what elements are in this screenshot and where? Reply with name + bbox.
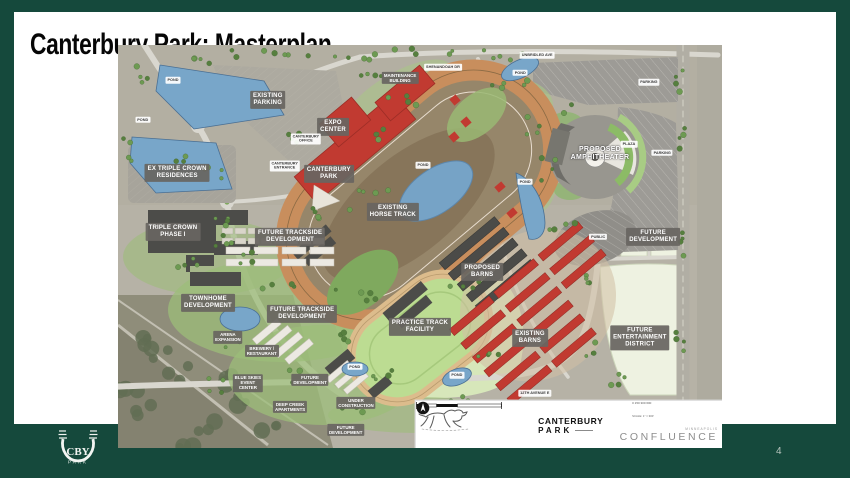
label-pond-southeast: POND bbox=[449, 372, 464, 378]
label-pond-infield: POND bbox=[416, 162, 431, 168]
label-future-development-south: FUTURE DEVELOPMENT bbox=[327, 424, 364, 436]
confluence-wordmark: MINNEAPOLIS CONFLUENCE bbox=[620, 427, 718, 443]
label-expo-center: EXPO CENTER bbox=[317, 118, 349, 136]
label-proposed-barns: PROPOSED BARNS bbox=[461, 263, 503, 281]
canterbury-wordmark-line2: PARK bbox=[538, 426, 603, 435]
label-blue-skies-event-center: BLUE SKIES EVENT CENTER bbox=[233, 374, 263, 392]
map-labels: EXISTING PARKINGEXPO CENTERCANTERBURY PA… bbox=[118, 45, 722, 448]
label-existing-parking: EXISTING PARKING bbox=[250, 91, 286, 109]
label-ex-triple-crown-residences: EX TRIPLE CROWN RESIDENCES bbox=[145, 164, 210, 182]
canterbury-park-wordmark: CANTERBURY PARK bbox=[538, 416, 603, 435]
confluence-word: CONFLUENCE bbox=[620, 431, 718, 443]
label-canterbury-park: CANTERBURY PARK bbox=[304, 165, 354, 183]
north-arrow-icon bbox=[416, 401, 430, 415]
cby-word: PARK bbox=[68, 460, 88, 465]
label-pond-north: POND bbox=[513, 70, 528, 76]
label-pond-2: POND bbox=[135, 117, 150, 123]
label-future-development-mid: FUTURE DEVELOPMENT bbox=[291, 374, 328, 386]
label-proposed-amphitheater: PROPOSED AMPHITHEATER bbox=[571, 146, 630, 163]
map-legend-strip: CANTERBURY PARK 0 150 300 600 SCALE: 1" … bbox=[415, 400, 722, 448]
label-brewery-restaurant: BREWERY / RESTAURANT bbox=[245, 345, 279, 357]
label-public-lot: PUBLIC bbox=[589, 234, 607, 240]
scale-note: SCALE: 1" = 300' bbox=[632, 414, 654, 418]
label-canterbury-office: CANTERBURY OFFICE bbox=[291, 133, 321, 144]
label-pond-southwest: POND bbox=[347, 364, 362, 370]
label-parking-east: PARKING bbox=[652, 150, 673, 156]
label-maintenance-building: MAINTENANCE BUILDING bbox=[382, 72, 418, 84]
label-unbridled-ave: UNBRIDLED AVE bbox=[520, 52, 555, 58]
label-pond-east: POND bbox=[518, 179, 533, 185]
label-parking-north: PARKING bbox=[638, 79, 659, 85]
label-townhome-development: TOWNHOME DEVELOPMENT bbox=[181, 294, 235, 312]
label-shenandoah-dr: SHENANDOAH DR bbox=[424, 64, 462, 70]
label-future-trackside-development-south: FUTURE TRACKSIDE DEVELOPMENT bbox=[267, 305, 337, 323]
label-plaza: PLAZA bbox=[621, 141, 638, 147]
masterplan-map: EXISTING PARKINGEXPO CENTERCANTERBURY PA… bbox=[118, 45, 722, 448]
label-12th-avenue: 12TH AVENUE E bbox=[518, 390, 551, 396]
page-number: 4 bbox=[776, 446, 782, 457]
label-pond-1: POND bbox=[165, 77, 180, 83]
label-deep-creek-apartments: DEEP CREEK APARTMENTS bbox=[273, 401, 307, 413]
label-future-development-east: FUTURE DEVELOPMENT bbox=[626, 228, 680, 246]
cby-monogram: CBY bbox=[66, 446, 89, 458]
label-under-construction: UNDER CONSTRUCTION bbox=[336, 397, 375, 409]
label-triple-crown-phase-1: TRIPLE CROWN PHASE I bbox=[146, 223, 201, 241]
label-future-trackside-development-north: FUTURE TRACKSIDE DEVELOPMENT bbox=[255, 228, 325, 246]
label-arena-expansion: ARENA EXPANSION bbox=[213, 331, 243, 343]
scale-tick-labels: 0 150 300 600 bbox=[632, 401, 718, 405]
canterbury-wordmark-line1: CANTERBURY bbox=[538, 416, 603, 426]
label-existing-horse-track: EXISTING HORSE TRACK bbox=[367, 203, 419, 221]
cby-park-logo: CBY PARK bbox=[52, 427, 104, 475]
label-canterbury-entrance: CANTERBURY ENTRANCE bbox=[269, 160, 299, 171]
label-existing-barns: EXISTING BARNS bbox=[512, 329, 548, 347]
label-future-entertainment-district: FUTURE ENTERTAINMENT DISTRICT bbox=[610, 325, 670, 350]
label-practice-track-facility: PRACTICE TRACK FACILITY bbox=[389, 318, 451, 336]
